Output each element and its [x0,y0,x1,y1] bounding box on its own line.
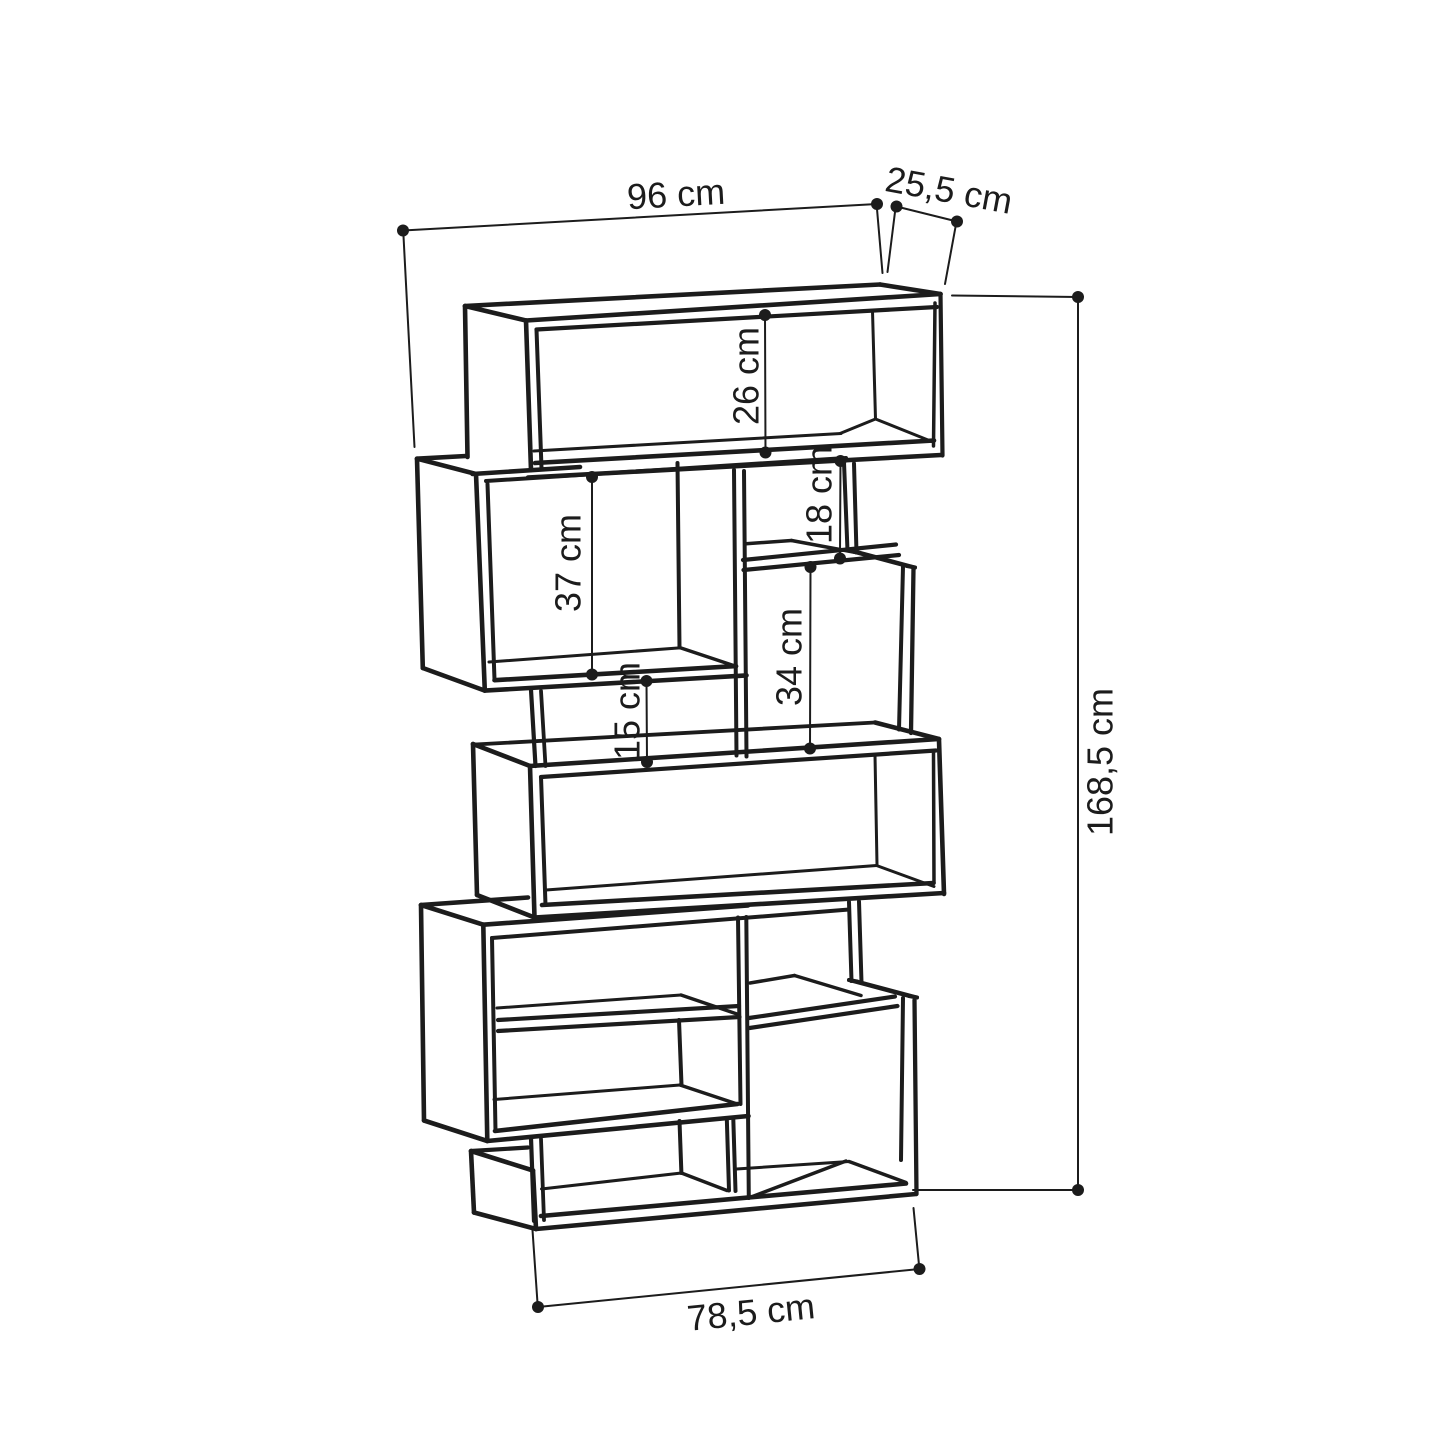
svg-text:15 cm: 15 cm [607,662,648,760]
svg-text:18 cm: 18 cm [799,446,840,544]
svg-text:96 cm: 96 cm [626,171,726,217]
svg-text:34 cm: 34 cm [769,608,810,706]
svg-text:168,5 cm: 168,5 cm [1080,688,1121,836]
svg-text:37 cm: 37 cm [548,514,589,612]
svg-text:26 cm: 26 cm [726,327,767,425]
